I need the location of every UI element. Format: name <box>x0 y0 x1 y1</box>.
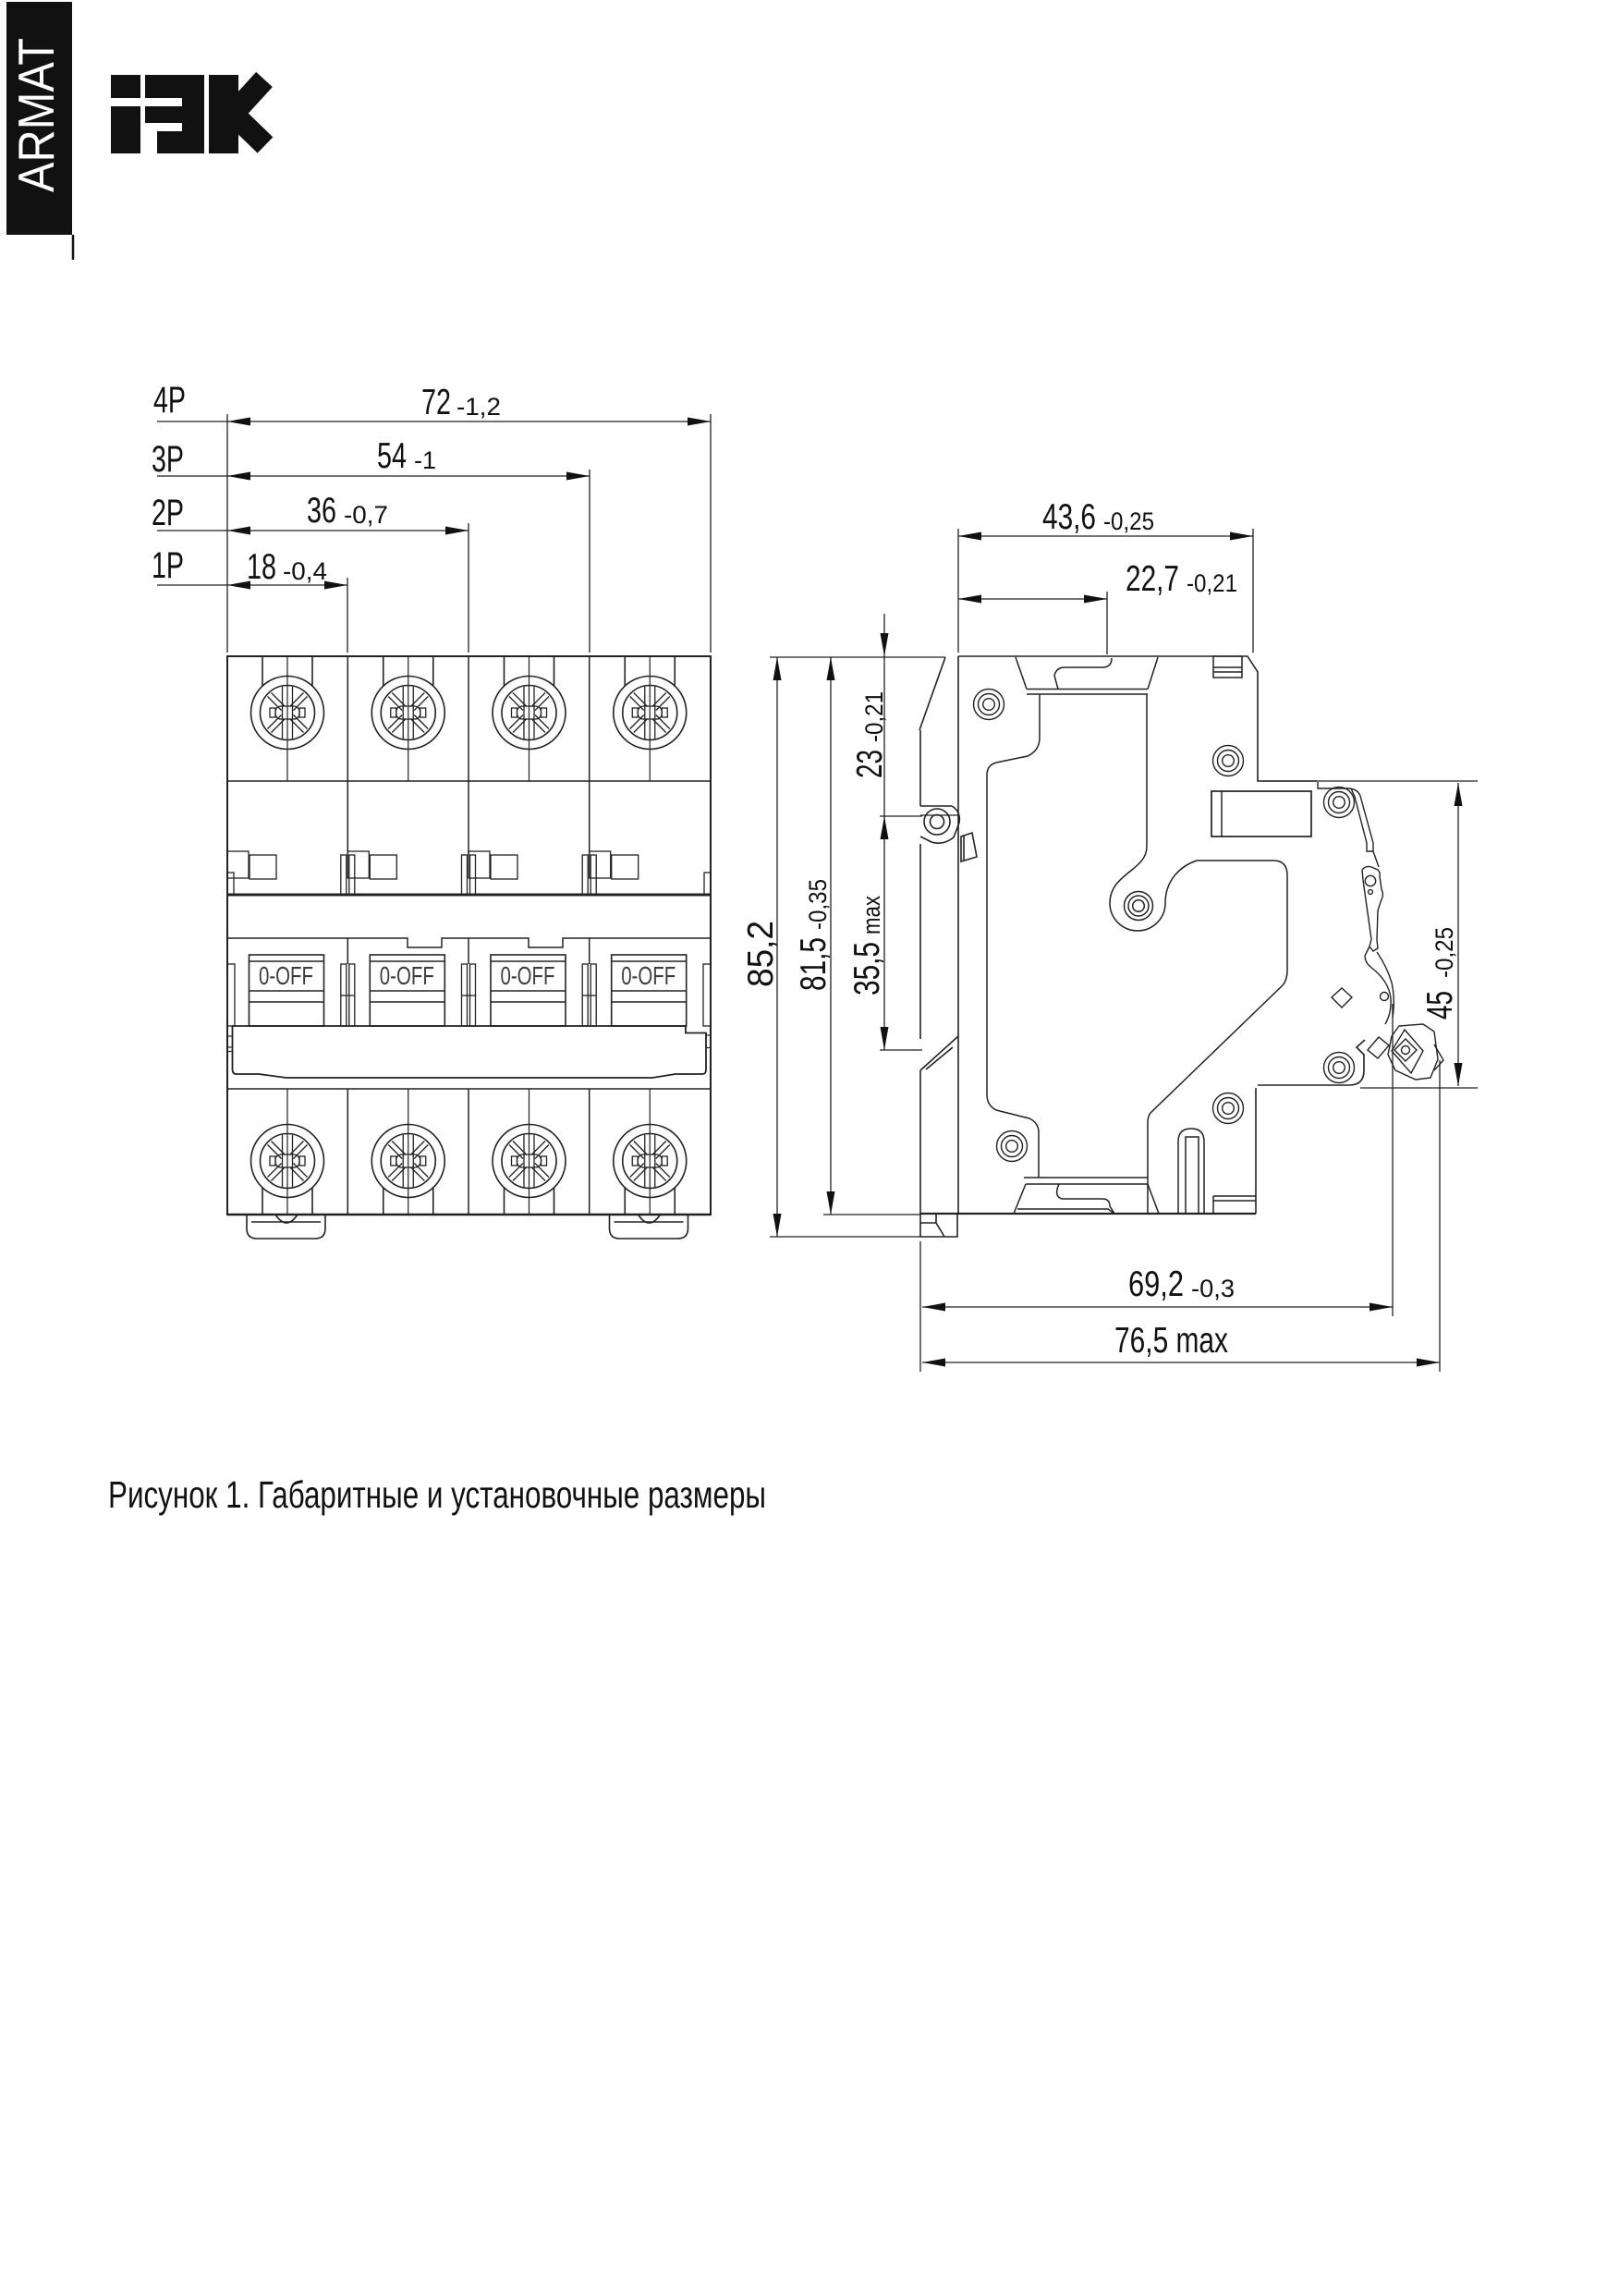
svg-text:-1: -1 <box>414 446 436 474</box>
svg-text:-0,21: -0,21 <box>1187 569 1237 597</box>
svg-text:2P: 2P <box>152 493 184 533</box>
svg-text:72: 72 <box>421 383 451 422</box>
svg-text:-0,3: -0,3 <box>1191 1275 1235 1302</box>
svg-text:1P: 1P <box>152 545 184 586</box>
svg-text:-0,25: -0,25 <box>1103 507 1154 535</box>
svg-text:45: 45 <box>1420 991 1460 1020</box>
svg-text:18: 18 <box>247 547 276 587</box>
svg-text:-1,2: -1,2 <box>456 393 501 421</box>
svg-text:-0,4: -0,4 <box>283 557 327 585</box>
svg-text:0-OFF: 0-OFF <box>380 961 434 990</box>
svg-text:85,2: 85,2 <box>741 921 781 987</box>
svg-text:ARMAT: ARMAT <box>7 38 65 192</box>
svg-text:54: 54 <box>377 436 407 476</box>
svg-text:0-OFF: 0-OFF <box>501 961 555 990</box>
svg-text:-0,25: -0,25 <box>1430 927 1458 978</box>
svg-text:43,6: 43,6 <box>1042 497 1096 537</box>
svg-text:0-OFF: 0-OFF <box>259 961 313 990</box>
svg-text:81,5: 81,5 <box>794 937 834 991</box>
svg-text:69,2: 69,2 <box>1128 1264 1184 1304</box>
svg-text:76,5 max: 76,5 max <box>1114 1321 1228 1361</box>
svg-text:4P: 4P <box>153 380 186 421</box>
svg-text:-0,7: -0,7 <box>344 501 388 529</box>
svg-text:22,7: 22,7 <box>1126 559 1179 599</box>
svg-text:36: 36 <box>307 491 336 531</box>
svg-text:0-OFF: 0-OFF <box>621 961 676 990</box>
svg-text:3P: 3P <box>152 439 184 480</box>
svg-text:Рисунок 1. Габаритные и устано: Рисунок 1. Габаритные и установочные раз… <box>108 1473 766 1516</box>
svg-text:max: max <box>858 896 885 934</box>
svg-text:-0,35: -0,35 <box>804 879 832 930</box>
svg-text:35,5: 35,5 <box>847 942 887 995</box>
